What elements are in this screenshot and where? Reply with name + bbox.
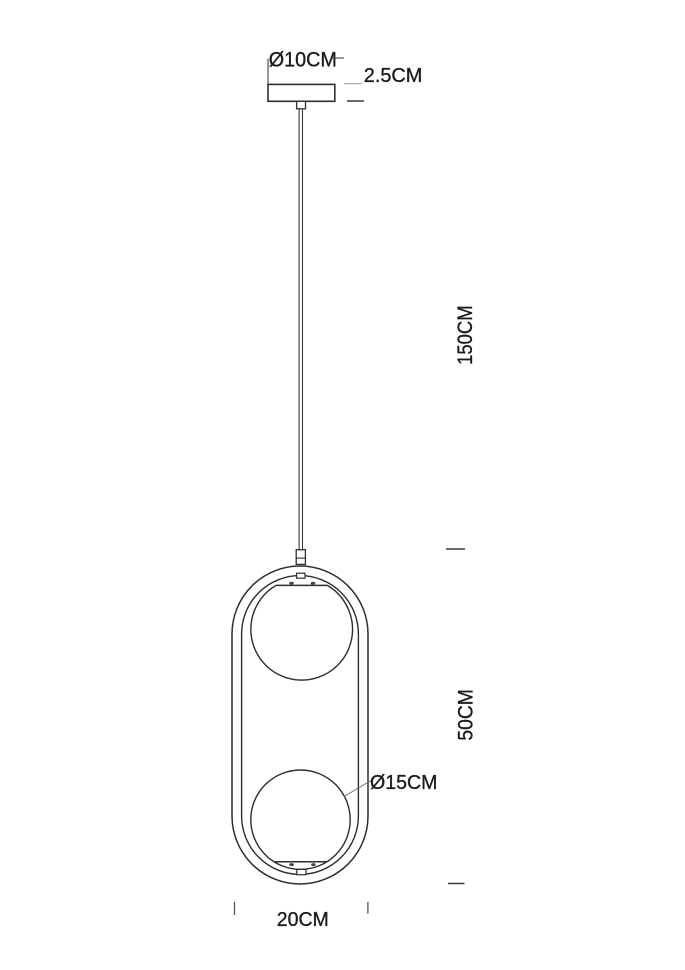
svg-text:50CM: 50CM [454, 689, 478, 741]
svg-text:Ø10CM: Ø10CM [269, 48, 337, 71]
svg-text:20CM: 20CM [277, 909, 329, 931]
svg-text:2.5CM: 2.5CM [364, 64, 423, 87]
svg-text:150CM: 150CM [453, 305, 477, 365]
svg-text:Ø15CM: Ø15CM [370, 772, 438, 794]
